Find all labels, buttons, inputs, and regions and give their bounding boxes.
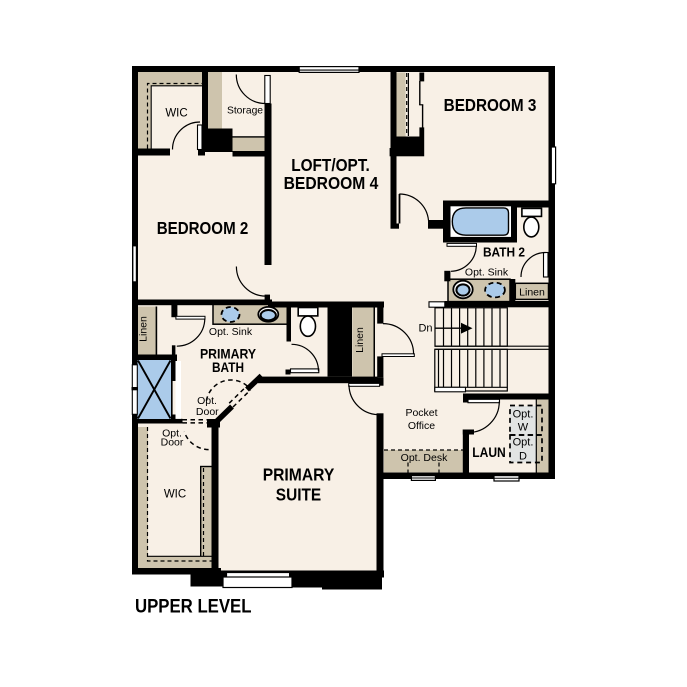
svg-text:WIC: WIC: [164, 489, 186, 501]
svg-text:Opt. Desk: Opt. Desk: [401, 452, 448, 464]
svg-text:WIC: WIC: [165, 108, 187, 120]
svg-text:BATH: BATH: [212, 359, 244, 375]
svg-text:Linen: Linen: [354, 327, 366, 353]
svg-text:BEDROOM 3: BEDROOM 3: [444, 95, 537, 115]
svg-text:Linen: Linen: [519, 287, 545, 299]
svg-text:UPPER LEVEL: UPPER LEVEL: [135, 597, 252, 618]
svg-text:BEDROOM 2: BEDROOM 2: [157, 218, 249, 238]
svg-text:Opt. Sink: Opt. Sink: [465, 267, 509, 279]
svg-text:Opt.: Opt.: [513, 437, 534, 449]
svg-text:Opt.: Opt.: [513, 409, 534, 421]
svg-text:Linen: Linen: [138, 316, 150, 342]
svg-text:D: D: [519, 451, 527, 463]
svg-text:BEDROOM 4: BEDROOM 4: [284, 173, 379, 193]
svg-text:Dn: Dn: [418, 323, 432, 335]
svg-text:Door: Door: [196, 406, 219, 418]
svg-text:LAUN: LAUN: [472, 444, 506, 460]
svg-text:W: W: [518, 422, 529, 434]
svg-text:BATH 2: BATH 2: [483, 246, 525, 260]
svg-text:SUITE: SUITE: [276, 485, 321, 505]
svg-text:Storage: Storage: [227, 106, 263, 117]
svg-text:PRIMARY: PRIMARY: [263, 465, 335, 485]
svg-text:LOFT/OPT.: LOFT/OPT.: [291, 155, 370, 175]
svg-text:Office: Office: [408, 420, 435, 432]
svg-text:Door: Door: [161, 437, 184, 449]
svg-text:Opt. Sink: Opt. Sink: [209, 326, 253, 338]
svg-text:Pocket: Pocket: [405, 407, 437, 419]
